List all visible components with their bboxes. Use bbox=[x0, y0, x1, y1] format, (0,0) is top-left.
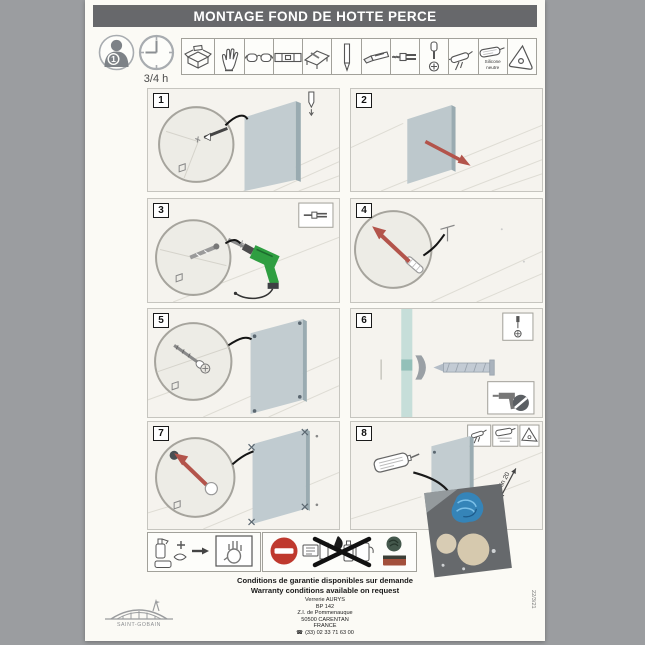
print-date-code: 22/3/21 bbox=[530, 590, 536, 609]
tool-set-square bbox=[303, 38, 332, 75]
step-7-panel: 7 bbox=[147, 421, 340, 530]
pencil-mark-icon bbox=[309, 92, 314, 115]
required-tools-strip: Silicone neutre bbox=[181, 38, 537, 75]
warranty-line-fr: Conditions de garantie disponibles sur d… bbox=[115, 576, 535, 585]
silicone-tube bbox=[373, 449, 421, 473]
tool-pencil bbox=[332, 38, 361, 75]
step-5-illustration bbox=[148, 309, 339, 417]
step-6-number: 6 bbox=[356, 313, 372, 328]
silicone-finishing-photo bbox=[424, 484, 512, 578]
page-title: MONTAGE FOND DE HOTTE PERCE bbox=[193, 9, 436, 24]
tool-safety-glasses bbox=[245, 38, 274, 75]
saint-gobain-bridge-icon bbox=[97, 597, 181, 623]
step-7-illustration bbox=[148, 422, 339, 529]
packaging-box-icon bbox=[183, 42, 213, 72]
instruction-sheet: MONTAGE FOND DE HOTTE PERCE 1 bbox=[85, 0, 545, 641]
through-screw bbox=[433, 360, 494, 375]
safety-glasses-icon bbox=[245, 44, 274, 70]
step-1-number: 1 bbox=[153, 93, 169, 108]
step-5-panel: 5 bbox=[147, 308, 340, 418]
tool-cutter-knife bbox=[362, 38, 391, 75]
cleaning-prohibited-box bbox=[262, 532, 417, 572]
power-drill bbox=[228, 239, 278, 298]
person-count-icon: 1 bbox=[98, 34, 135, 71]
magnifier-circle bbox=[159, 107, 233, 182]
tool-spirit-level bbox=[274, 38, 303, 75]
person-icon: 1 bbox=[98, 34, 135, 71]
tool-packaging-contents bbox=[181, 38, 215, 75]
tool-protective-glove bbox=[215, 38, 244, 75]
step-2-panel: 2 bbox=[350, 88, 543, 192]
callout-curve bbox=[225, 116, 247, 126]
gloved-hand-photo bbox=[424, 484, 512, 578]
step-3-number: 3 bbox=[153, 203, 169, 218]
step-1-panel: 1 bbox=[147, 88, 340, 192]
step-7-number: 7 bbox=[153, 426, 169, 441]
silicone-label: Silicone neutre bbox=[485, 59, 501, 69]
tool-caulking-gun bbox=[449, 38, 478, 75]
step-8-number: 8 bbox=[356, 426, 372, 441]
step-4-illustration bbox=[351, 199, 542, 302]
set-square-icon bbox=[303, 42, 332, 72]
sheet-background: MONTAGE FOND DE HOTTE PERCE 1 bbox=[0, 0, 645, 645]
prohibited-products-icon bbox=[263, 533, 414, 569]
step-3-panel: 3 bbox=[147, 198, 340, 303]
phone-icon: ☎ bbox=[296, 630, 303, 637]
duration-clock-icon bbox=[136, 32, 177, 73]
cleaning-products-icon bbox=[148, 533, 258, 569]
pencil-icon bbox=[335, 41, 359, 73]
step-6-panel: 6 bbox=[350, 308, 543, 418]
warranty-line-en: Warranty conditions available on request bbox=[115, 586, 535, 595]
callout-curve bbox=[232, 451, 253, 464]
callout-curve bbox=[228, 338, 251, 346]
step-5-number: 5 bbox=[153, 313, 169, 328]
magnifier-circle bbox=[156, 438, 234, 517]
tool-screwdriver-and-screw bbox=[420, 38, 449, 75]
step-2-illustration bbox=[351, 89, 542, 191]
anchor-cap bbox=[415, 355, 426, 379]
magnifier-circle bbox=[155, 323, 231, 400]
step-4-number: 4 bbox=[356, 203, 372, 218]
cleaning-allowed-box bbox=[147, 532, 261, 572]
tool-plastic-smoother bbox=[508, 38, 537, 75]
step-1-illustration bbox=[148, 89, 339, 191]
glove-icon bbox=[216, 41, 244, 73]
step-6-illustration bbox=[351, 309, 542, 417]
step-4-panel: 4 bbox=[350, 198, 543, 303]
smoother-triangle-icon bbox=[508, 42, 537, 72]
title-bar: MONTAGE FOND DE HOTTE PERCE bbox=[93, 5, 537, 27]
magnifier-circle bbox=[355, 211, 431, 288]
duration-label: 3/4 h bbox=[134, 73, 178, 85]
clock-icon bbox=[136, 32, 177, 73]
svg-text:1: 1 bbox=[111, 54, 116, 64]
step-3-illustration bbox=[148, 199, 339, 302]
drill-bit-icon bbox=[391, 45, 420, 69]
step-2-number: 2 bbox=[356, 93, 372, 108]
phone-number: (33) 02 33 71 63 00 bbox=[305, 630, 354, 637]
caulking-gun-icon bbox=[449, 42, 478, 72]
screwdriver-icon bbox=[422, 40, 446, 74]
blue-glove bbox=[449, 490, 485, 524]
spirit-level-icon bbox=[274, 45, 303, 69]
saint-gobain-logo: SAINT-GOBAIN bbox=[97, 597, 181, 628]
saint-gobain-wordmark: SAINT-GOBAIN bbox=[97, 622, 181, 628]
tool-silicone-cartridge: Silicone neutre bbox=[479, 38, 508, 75]
cutter-knife-icon bbox=[362, 43, 391, 71]
tool-drill-bit-and-anchor bbox=[391, 38, 420, 75]
phone-line: ☎ (33) 02 33 71 63 00 bbox=[115, 630, 535, 637]
